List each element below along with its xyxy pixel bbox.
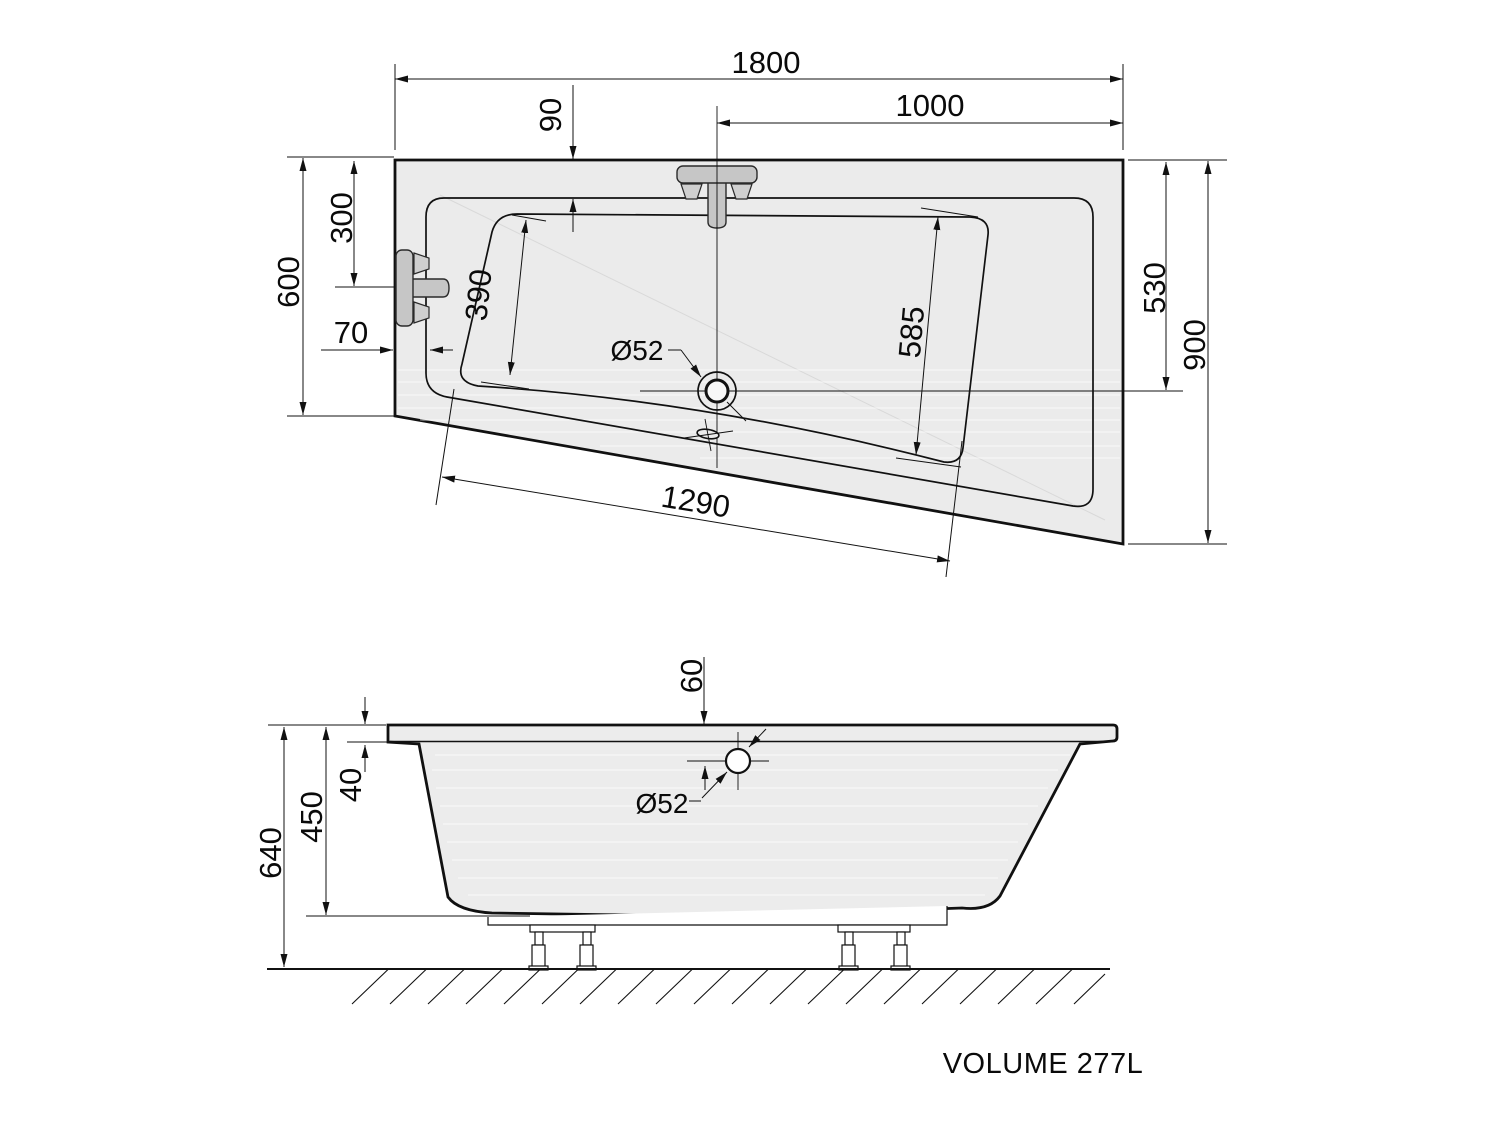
dim-drain-offset-top: 530	[1137, 162, 1172, 390]
plan-tub-outer-outline	[395, 160, 1123, 544]
dim-rim-width-left-value: 70	[334, 315, 368, 350]
dim-basin-left-edge-value: 390	[458, 267, 498, 322]
ground-hatching	[352, 970, 1105, 1005]
foot-4	[891, 932, 910, 970]
dim-total-height-value: 640	[253, 827, 288, 879]
faucet-left-body	[396, 250, 413, 326]
dim-inner-depth-value: 450	[294, 791, 329, 843]
dim-left-side-height-value: 600	[271, 256, 306, 308]
dim-drain-offset-right-value: 1000	[896, 88, 965, 123]
left-bracket	[530, 925, 595, 932]
dim-drain-offset-top-value: 530	[1137, 262, 1172, 314]
dim-overall-width-value: 1800	[732, 45, 801, 80]
plan-view: Ø52 1800 1000 90 600	[271, 45, 1227, 577]
foot-1	[529, 932, 548, 970]
support-frame	[488, 906, 947, 970]
volume-label: VOLUME 277L	[943, 1048, 1144, 1080]
dim-overflow-offset-value: 60	[674, 659, 709, 693]
faucet-left-stem	[411, 279, 449, 297]
foot-2	[577, 932, 596, 970]
plan-drain-diameter-label: Ø52	[611, 335, 664, 366]
dim-right-side-height: 900	[1128, 160, 1227, 544]
dim-total-height: 640	[253, 725, 386, 967]
dim-rim-thickness-value: 40	[333, 768, 368, 802]
elevation-view: Ø52 60 40 450 640	[253, 657, 1117, 1004]
dim-overall-width: 1800	[395, 45, 1123, 150]
dim-tap-offset-left-value: 300	[324, 192, 359, 244]
dim-drain-offset-right: 1000	[717, 88, 1123, 123]
right-bracket	[838, 925, 910, 932]
dim-rim-width-top-value: 90	[533, 98, 568, 132]
dim-right-side-height-value: 900	[1177, 319, 1212, 371]
dim-tap-offset-left: 300	[324, 161, 395, 287]
drawing-canvas: Ø52 1800 1000 90 600	[0, 0, 1500, 1122]
dim-basin-bottom-edge-value: 1290	[659, 479, 733, 525]
dim-basin-right-edge-value: 585	[892, 305, 931, 360]
elevation-overflow-diameter-label: Ø52	[636, 788, 689, 819]
foot-3	[839, 932, 858, 970]
drain-inner-circle	[706, 380, 728, 402]
dim-rim-thickness: 40	[333, 697, 390, 802]
ground	[267, 969, 1110, 1004]
overflow-circle	[726, 749, 750, 773]
technical-drawing-bathtub: Ø52 1800 1000 90 600	[0, 0, 1500, 1122]
